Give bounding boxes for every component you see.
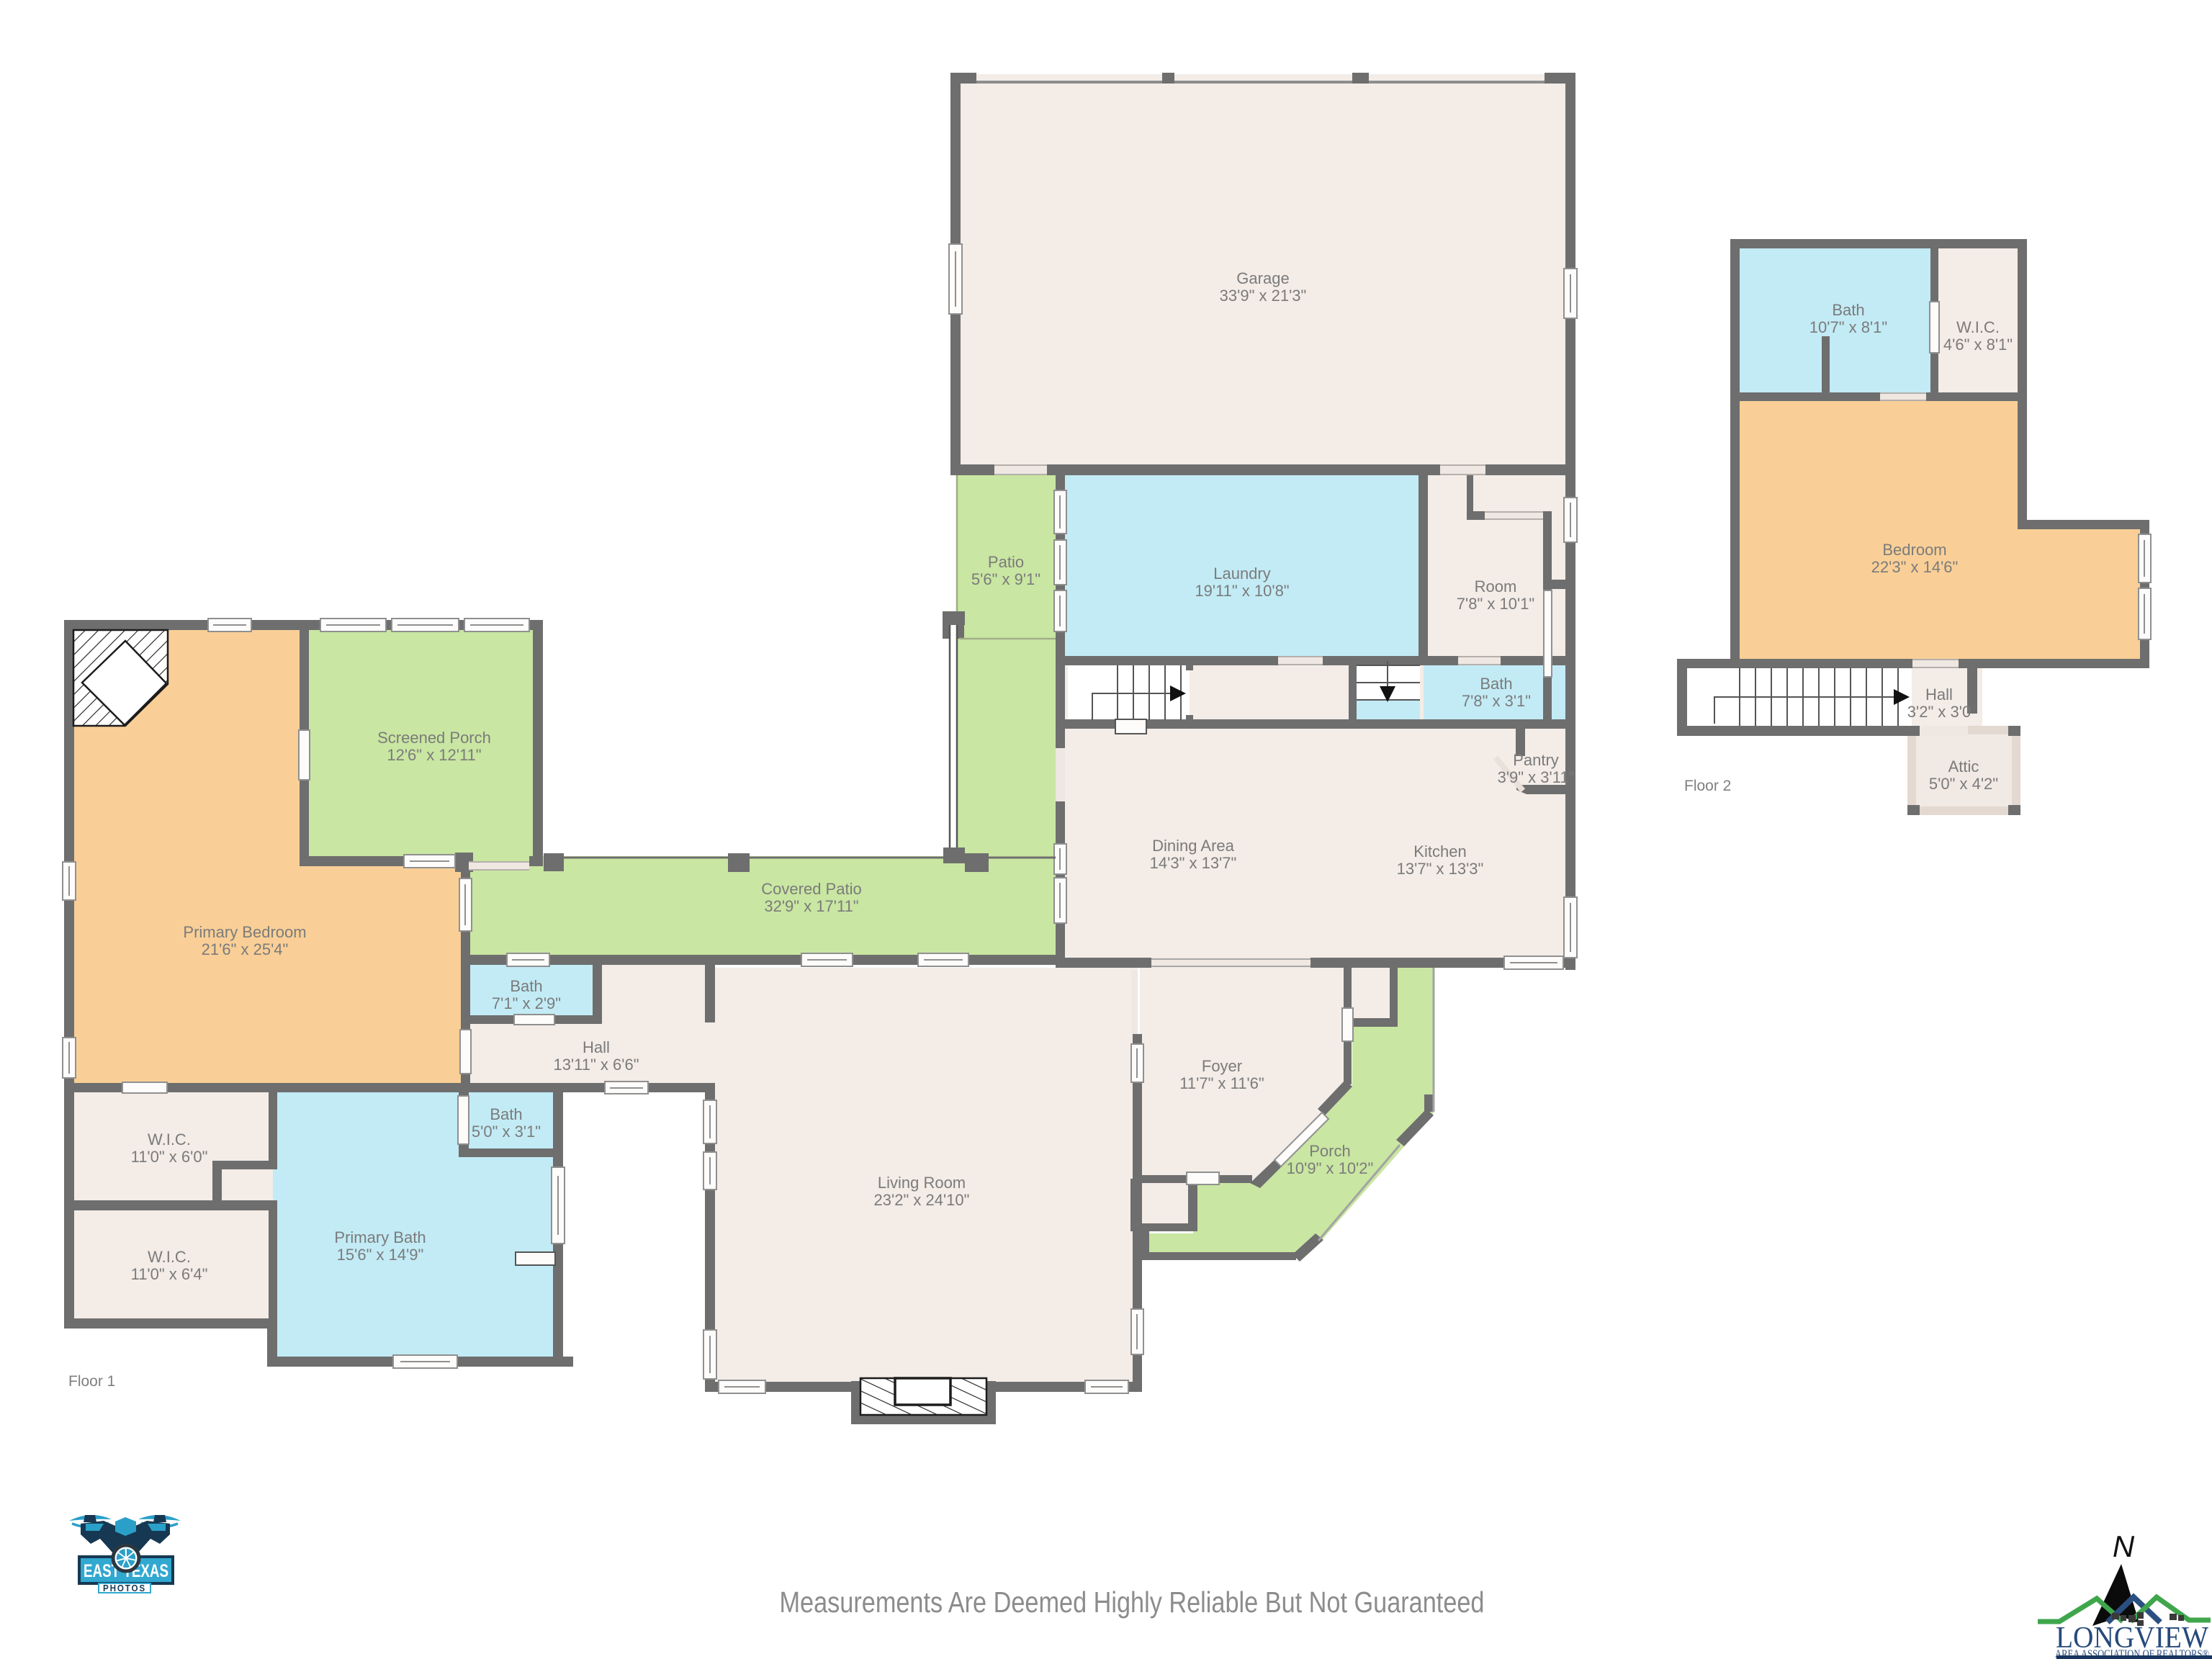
svg-text:22'3" x 14'6": 22'3" x 14'6" — [1871, 558, 1959, 576]
svg-text:11'7" x 11'6": 11'7" x 11'6" — [1179, 1074, 1264, 1092]
svg-text:PHOTOS: PHOTOS — [103, 1583, 146, 1593]
svg-text:12'6" x 12'11": 12'6" x 12'11" — [387, 746, 481, 764]
svg-text:Hall: Hall — [1925, 685, 1953, 703]
svg-text:21'6" x 25'4": 21'6" x 25'4" — [202, 940, 289, 958]
svg-text:Primary Bath: Primary Bath — [334, 1228, 426, 1246]
svg-text:W.I.C.: W.I.C. — [148, 1130, 191, 1148]
svg-text:N: N — [2113, 1529, 2135, 1563]
svg-text:W.I.C.: W.I.C. — [148, 1248, 191, 1266]
svg-text:W.I.C.: W.I.C. — [1956, 318, 2000, 336]
svg-text:Measurements Are Deemed Highly: Measurements Are Deemed Highly Reliable … — [780, 1586, 1485, 1619]
svg-text:4'6" x 8'1": 4'6" x 8'1" — [1943, 336, 2013, 354]
svg-text:5'0" x 3'1": 5'0" x 3'1" — [472, 1123, 541, 1141]
svg-text:Bath: Bath — [510, 977, 542, 995]
svg-text:Covered Patio: Covered Patio — [761, 880, 861, 898]
svg-text:Kitchen: Kitchen — [1413, 842, 1466, 860]
svg-text:Bedroom: Bedroom — [1882, 541, 1946, 559]
svg-text:14'3" x 13'7": 14'3" x 13'7" — [1150, 854, 1237, 872]
svg-text:10'9" x 10'2": 10'9" x 10'2" — [1287, 1159, 1374, 1177]
svg-text:11'0" x 6'4": 11'0" x 6'4" — [131, 1265, 208, 1283]
svg-text:Laundry: Laundry — [1213, 565, 1271, 583]
svg-text:Porch: Porch — [1309, 1142, 1350, 1160]
svg-text:Pantry: Pantry — [1513, 751, 1559, 769]
svg-text:Floor 2: Floor 2 — [1684, 778, 1731, 794]
svg-text:5'6" x 9'1": 5'6" x 9'1" — [971, 570, 1040, 588]
svg-text:13'11" x 6'6": 13'11" x 6'6" — [553, 1056, 639, 1074]
svg-text:11'0" x 6'0": 11'0" x 6'0" — [131, 1148, 208, 1166]
svg-text:Attic: Attic — [1948, 757, 1979, 775]
svg-text:7'1" x 2'9": 7'1" x 2'9" — [492, 994, 561, 1012]
svg-text:Room: Room — [1475, 577, 1517, 595]
svg-text:Bath: Bath — [490, 1105, 522, 1123]
svg-text:23'2" x 24'10": 23'2" x 24'10" — [874, 1191, 970, 1209]
svg-text:15'6" x 14'9": 15'6" x 14'9" — [337, 1246, 424, 1264]
svg-text:10'7" x 8'1": 10'7" x 8'1" — [1809, 318, 1887, 336]
svg-text:Foyer: Foyer — [1202, 1057, 1242, 1075]
svg-text:32'9" x 17'11": 32'9" x 17'11" — [764, 897, 858, 915]
svg-text:7'8" x 3'1": 7'8" x 3'1" — [1462, 692, 1531, 710]
svg-text:3'2" x 3'0: 3'2" x 3'0 — [1907, 703, 1971, 721]
svg-text:Bath: Bath — [1832, 301, 1864, 319]
svg-text:Screened Porch: Screened Porch — [377, 729, 491, 747]
svg-text:Floor 1: Floor 1 — [68, 1373, 115, 1390]
svg-text:Bath: Bath — [1480, 675, 1512, 693]
svg-text:7'8" x 10'1": 7'8" x 10'1" — [1457, 595, 1534, 613]
svg-text:3'9" x 3'11": 3'9" x 3'11" — [1498, 768, 1575, 786]
svg-text:Patio: Patio — [988, 553, 1024, 571]
svg-text:Dining Area: Dining Area — [1152, 837, 1235, 855]
svg-text:Hall: Hall — [583, 1038, 610, 1056]
svg-text:33'9" x 21'3": 33'9" x 21'3" — [1220, 287, 1307, 305]
svg-text:Living Room: Living Room — [878, 1174, 966, 1192]
svg-text:19'11" x 10'8": 19'11" x 10'8" — [1195, 582, 1289, 600]
svg-text:13'7" x 13'3": 13'7" x 13'3" — [1397, 860, 1484, 878]
svg-text:5'0" x 4'2": 5'0" x 4'2" — [1929, 775, 1998, 793]
svg-text:Garage: Garage — [1236, 269, 1289, 287]
svg-text:Primary Bedroom: Primary Bedroom — [183, 923, 306, 941]
